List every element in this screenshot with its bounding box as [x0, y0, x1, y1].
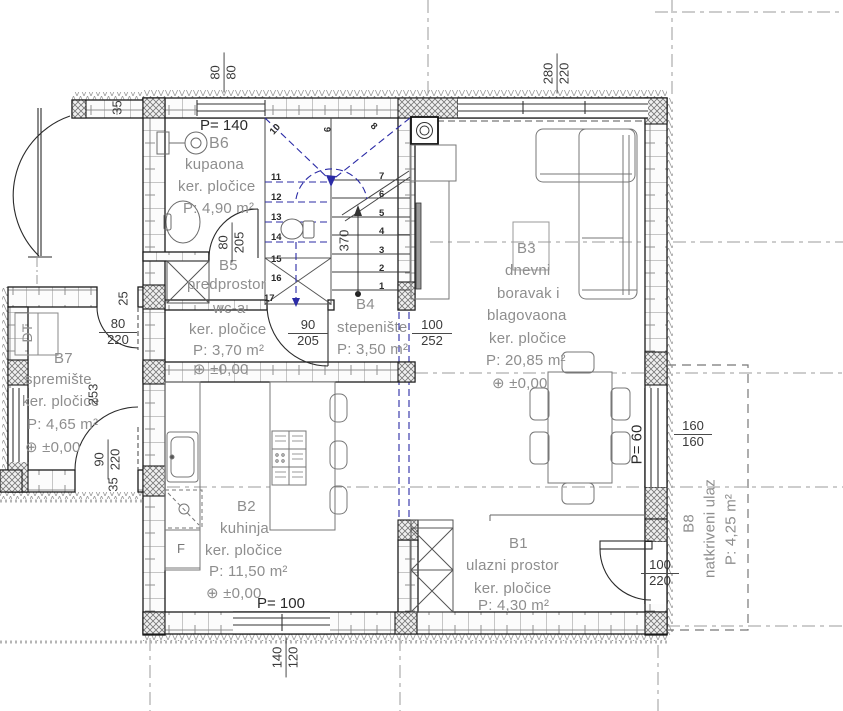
- b7-room-name: spremište: [25, 371, 92, 388]
- b2-parapet-label: P= 100: [257, 595, 305, 612]
- b7-level-label: ⊕ ±0,00: [25, 438, 81, 456]
- b3-room-id: B3: [517, 240, 536, 257]
- b5-floor-label: ker. pločice: [189, 321, 266, 338]
- plan-drawing: [0, 0, 843, 711]
- b6-parapet-label: P= 140: [200, 117, 248, 134]
- dim-wall-35-top: 35: [110, 95, 125, 121]
- b3-room-name-2: boravak i: [497, 285, 560, 302]
- dim-door-bathroom: 80205: [217, 222, 248, 262]
- dim-window-bottom: 140120: [271, 637, 302, 677]
- b6-floor-label: ker. pločice: [178, 178, 255, 195]
- b8-room-name: natkriveni ulaz: [702, 469, 719, 589]
- b5-room-name: predprostor: [187, 276, 266, 293]
- dim-wall-25: 25: [116, 286, 131, 312]
- b1-area-label: P: 4,30 m²: [478, 597, 549, 614]
- level-marker-icon: ⊕: [206, 585, 219, 602]
- b6-area-label: P: 4,90 m²: [183, 200, 254, 217]
- b4-room-id: B4: [356, 296, 375, 313]
- step-13: 13: [271, 212, 282, 223]
- b2-room-name: kuhinja: [220, 520, 269, 537]
- dim-window-top-large: 280220: [542, 53, 573, 93]
- step-5: 5: [379, 208, 384, 219]
- dim-wall-35-bottom: 35: [106, 472, 121, 498]
- dim-door-b7-upper: 80220: [99, 317, 137, 348]
- b2-level-label: ⊕ ±0,00: [206, 584, 262, 602]
- walls: [0, 90, 673, 641]
- b3-area-label: P: 20,85 m²: [486, 352, 566, 369]
- step-1: 1: [379, 281, 384, 292]
- dim-window-right: 160160: [674, 419, 712, 450]
- step-9: 9: [321, 127, 332, 132]
- fridge-label: F: [177, 541, 185, 556]
- b5-level-label: ⊕ ±0,00: [193, 360, 249, 378]
- dim-stairs-opening: 100252: [412, 318, 452, 349]
- b3-room-name-1: dnevni: [505, 262, 550, 279]
- step-4: 4: [379, 226, 384, 237]
- step-15: 15: [271, 254, 282, 265]
- step-14: 14: [271, 232, 282, 243]
- dim-b7-length: 253: [86, 380, 101, 410]
- sofa: [536, 129, 637, 299]
- level-marker-icon: ⊕: [492, 375, 505, 392]
- step-6: 6: [379, 189, 384, 200]
- dim-door-entrance: 100220: [641, 558, 679, 589]
- dim-stairs-run: 370: [337, 226, 352, 256]
- step-12: 12: [271, 192, 282, 203]
- b6-room-id: B6: [209, 135, 229, 153]
- b3-floor-label: ker. pločice: [489, 330, 566, 347]
- b2-floor-label: ker. pločice: [205, 542, 282, 559]
- b1-room-name: ulazni prostor: [466, 557, 559, 574]
- b3-level-label: ⊕ ±0,00: [492, 374, 548, 392]
- b8-room-id: B8: [681, 509, 698, 539]
- b4-room-name: stepenište: [337, 319, 407, 336]
- level-marker-icon: ⊕: [193, 361, 206, 378]
- b7-cabinet-label: DT: [19, 316, 35, 350]
- step-11: 11: [271, 172, 281, 183]
- b1-room-id: B1: [509, 535, 528, 552]
- b1-floor-label: ker. pločice: [474, 580, 551, 597]
- b7-room-id: B7: [54, 350, 73, 367]
- b7-area-label: P: 4,65 m²: [27, 416, 98, 433]
- b3-room-name-3: blagovaona: [487, 307, 567, 324]
- b6-room-name: kupaona: [185, 156, 244, 173]
- level-marker-icon: ⊕: [25, 439, 38, 456]
- b5-room-name2: wc-a: [213, 300, 245, 317]
- b8-parapet-label: P= 60: [629, 415, 646, 475]
- b4-area-label: P: 3,50 m²: [337, 341, 408, 358]
- b2-area-label: P: 11,50 m²: [209, 563, 288, 580]
- step-7: 7: [379, 171, 384, 182]
- dim-window-top-small: 8080: [209, 52, 240, 92]
- dim-door-wc: 90205: [288, 318, 328, 349]
- b5-area-label: P: 3,70 m²: [193, 342, 264, 359]
- b2-room-id: B2: [237, 498, 256, 515]
- step-3: 3: [379, 245, 384, 256]
- step-2: 2: [379, 263, 384, 274]
- floor-plan: P= 140 B6 kupaona ker. pločice P: 4,90 m…: [0, 0, 843, 711]
- step-16: 16: [271, 273, 282, 284]
- b8-area-label: P: 4,25 m²: [723, 480, 740, 580]
- step-17: 17: [264, 293, 275, 304]
